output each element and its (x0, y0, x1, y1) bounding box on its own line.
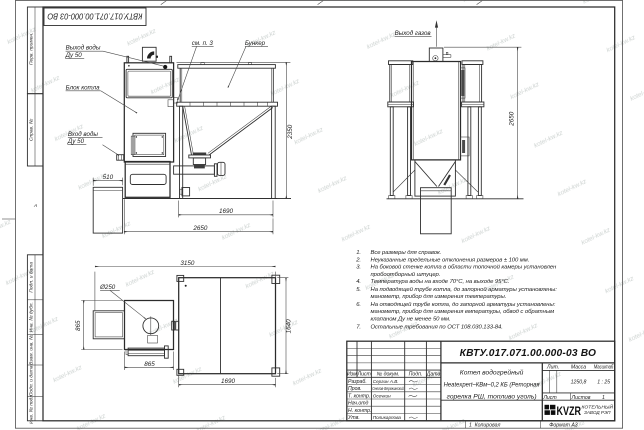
svg-text:4.: 4. (356, 279, 361, 285)
svg-text:На подводящей трубе котла, до: На подводящей трубе котла, до запорной а… (371, 286, 558, 293)
svg-text:Изм: Изм (347, 372, 357, 378)
svg-text:Инв. № подл.: Инв. № подл. (28, 394, 34, 424)
svg-text:КОТЕЛЬНЫЙ: КОТЕЛЬНЫЙ (582, 402, 614, 409)
svg-text:Ø250: Ø250 (99, 284, 116, 291)
svg-text:2650: 2650 (509, 111, 516, 127)
svg-text:Взам. инв. №: Взам. инв. № (28, 335, 34, 365)
svg-text:6.: 6. (356, 302, 361, 308)
svg-text:Нач.отд: Нач.отд (348, 401, 369, 407)
svg-text:пробоотборный штуцер.: пробоотборный штуцер. (371, 271, 441, 278)
svg-text:Температура воды на входе 70°С: Температура воды на входе 70°С, на выход… (371, 279, 510, 285)
svg-text:Поликарпова: Поликарпова (373, 415, 402, 420)
svg-text:Копировал: Копировал (475, 422, 501, 428)
svg-text:Перв. примен.: Перв. примен. (28, 33, 34, 66)
svg-text:Инв. № дубл.: Инв. № дубл. (28, 302, 34, 332)
svg-text:1.: 1. (356, 250, 361, 256)
svg-text:Лист: Лист (542, 395, 557, 401)
svg-text:Ду 50: Ду 50 (65, 52, 83, 59)
svg-text:Блок котла: Блок котла (66, 84, 100, 91)
svg-text:Т. контр.: Т. контр. (348, 393, 370, 399)
svg-text:1640: 1640 (286, 319, 293, 334)
svg-text:манометр, прибор для измерения: манометр, прибор для измерения температу… (371, 294, 507, 300)
svg-text:2350: 2350 (287, 124, 294, 140)
svg-text:Подп. и дата: Подп. и дата (28, 262, 34, 293)
svg-text:Выход воды: Выход воды (66, 45, 101, 52)
svg-text:Бункер: Бункер (245, 40, 266, 47)
svg-text:На боковой стенке котла в обла: На боковой стенке котла в области топочн… (371, 264, 558, 271)
svg-text:7.: 7. (356, 325, 361, 331)
svg-text:Лит.: Лит. (546, 365, 559, 371)
svg-text:КВТУ.017.071.00.000-03 ВО: КВТУ.017.071.00.000-03 ВО (47, 12, 143, 21)
svg-text:Неуказанные предельные отклоне: Неуказанные предельные отклонения размер… (371, 258, 530, 264)
svg-text:1690: 1690 (219, 208, 234, 215)
svg-text:Лист: Лист (357, 372, 372, 378)
svg-text:манометр, прибор для измерения: манометр, прибор для измерения емператур… (371, 309, 555, 315)
svg-text:5.: 5. (356, 287, 361, 293)
svg-text:Утв.: Утв. (348, 415, 360, 421)
svg-text:3.: 3. (356, 265, 361, 271)
svg-text:Осечкин: Осечкин (373, 393, 391, 398)
svg-text:865: 865 (75, 320, 82, 331)
svg-text:2.: 2. (355, 258, 361, 264)
svg-text:А: А (33, 203, 37, 209)
svg-text:Масштаб: Масштаб (594, 365, 614, 371)
svg-text:3150: 3150 (180, 260, 195, 267)
svg-text:Все размеры для справок.: Все размеры для справок. (371, 250, 442, 256)
svg-text:Сергин А.В.: Сергин А.В. (373, 379, 399, 384)
svg-text:Heatexpert–КВм–0,2 КБ (Реторна: Heatexpert–КВм–0,2 КБ (Реторная (444, 382, 540, 389)
svg-text:Ду 50: Ду 50 (67, 138, 85, 145)
svg-text:№ докум.: № докум. (377, 372, 400, 378)
svg-text:Масса: Масса (571, 365, 586, 371)
svg-text:1 : 25: 1 : 25 (597, 380, 610, 386)
svg-text:Онегов-Вережинский: Онегов-Вережинский (372, 385, 404, 391)
svg-text:KVZR: KVZR (557, 404, 582, 418)
svg-text:Н. контр.: Н. контр. (348, 408, 371, 414)
svg-text:клапаном Ду не менее 50 мм.: клапаном Ду не менее 50 мм. (371, 317, 451, 323)
svg-text:Листов: Листов (571, 395, 591, 401)
svg-text:Подп. и дата: Подп. и дата (28, 365, 34, 396)
svg-text:Пров.: Пров. (348, 386, 362, 392)
svg-text:ЗАВОД РЭП: ЗАВОД РЭП (584, 410, 611, 415)
svg-text:горелка РШ, топливо уголь): горелка РШ, топливо уголь) (447, 394, 537, 401)
svg-text:Подп.: Подп. (409, 372, 423, 378)
svg-text:Выход газов: Выход газов (395, 30, 432, 37)
svg-text:Разраб.: Разраб. (348, 379, 367, 385)
svg-text:Котел водогрейный: Котел водогрейный (460, 369, 524, 377)
svg-text:Вход воды: Вход воды (68, 131, 98, 138)
svg-text:Дата: Дата (426, 372, 441, 378)
svg-text:865: 865 (144, 361, 155, 368)
svg-text:КВТУ.017.071.00.000-03 ВО: КВТУ.017.071.00.000-03 ВО (460, 348, 597, 359)
svg-text:Формат А3: Формат А3 (549, 422, 577, 428)
svg-text:Справ. №: Справ. № (28, 119, 34, 141)
svg-text:510: 510 (103, 174, 114, 181)
svg-text:2650: 2650 (192, 225, 208, 232)
svg-text:см. п. 3: см. п. 3 (192, 40, 214, 47)
svg-text:1: 1 (602, 395, 605, 401)
svg-text:1: 1 (469, 422, 472, 428)
svg-text:1250,8: 1250,8 (571, 380, 587, 386)
svg-text:На отводящей трубе котла, до з: На отводящей трубе котла, до запорной ар… (371, 301, 556, 308)
svg-text:1690: 1690 (221, 378, 236, 385)
svg-text:Остальные требования по ОСТ 10: Остальные требования по ОСТ 108.030.133-… (371, 325, 503, 331)
